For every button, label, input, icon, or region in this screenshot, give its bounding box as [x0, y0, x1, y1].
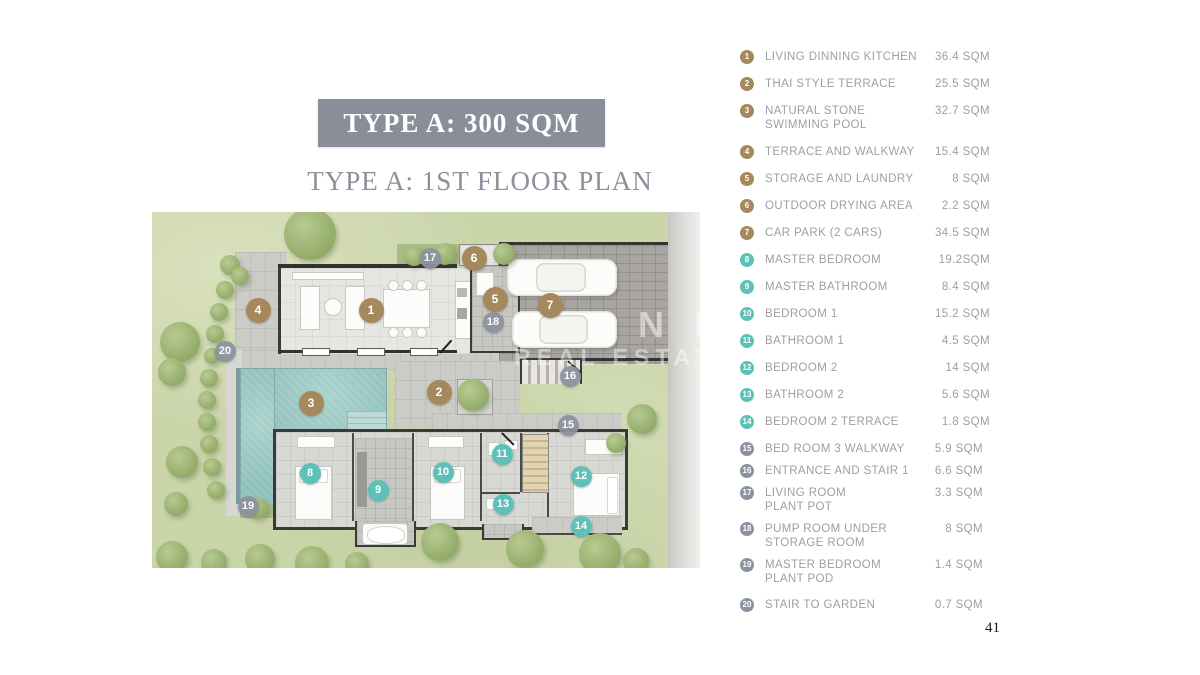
floor-plan: N PH REAL ESTATE 12345678910111213141516…: [152, 212, 700, 568]
legend-value: 14 SQM: [945, 361, 990, 375]
legend-label: OUTDOOR DRYING AREA: [765, 199, 931, 213]
plan-marker-1: 1: [359, 298, 384, 323]
plan-marker-2: 2: [427, 380, 452, 405]
tree: [166, 446, 198, 478]
legend-marker-17: 17: [740, 486, 754, 500]
legend-item-7: 7CAR PARK (2 CARS)34.5 SQM: [740, 226, 990, 240]
legend-value: 8.4 SQM: [942, 280, 990, 294]
plan-marker-17: 17: [420, 248, 441, 269]
legend-item-13: 13BATHROOM 25.6 SQM: [740, 388, 990, 402]
tree: [198, 413, 216, 431]
legend-marker-1: 1: [740, 50, 754, 64]
tree: [579, 533, 621, 568]
plan-marker-10: 10: [433, 462, 454, 483]
legend-marker-10: 10: [740, 307, 754, 321]
vanity: [357, 452, 367, 507]
legend-label: BEDROOM 2: [765, 361, 931, 375]
walkway-15: [432, 413, 622, 429]
tree: [158, 358, 186, 386]
legend-value: 1.4 SQM: [935, 558, 983, 572]
legend-label: LIVING ROOM PLANT POT: [765, 486, 931, 514]
legend: 1LIVING DINNING KITCHEN36.4 SQM2THAI STY…: [740, 50, 990, 620]
legend-label: BATHROOM 2: [765, 388, 931, 402]
legend-value: 36.4 SQM: [935, 50, 990, 64]
legend-value: 4.5 SQM: [942, 334, 990, 348]
plan-marker-14: 14: [571, 516, 592, 537]
watermark-line1: N PH: [638, 304, 700, 346]
chair: [388, 280, 399, 291]
legend-marker-2: 2: [740, 77, 754, 91]
kitchen-appliance: [457, 288, 467, 297]
legend-value: 25.5 SQM: [935, 77, 990, 91]
legend-value: 2.2 SQM: [942, 199, 990, 213]
wall: [278, 268, 281, 354]
legend-item-16: 16ENTRANCE AND STAIR 16.6 SQM: [740, 464, 990, 478]
dining-table: [383, 289, 430, 328]
tree: [160, 322, 200, 362]
tree: [210, 303, 228, 321]
legend-label: BED ROOM 3 WALKWAY: [765, 442, 931, 456]
legend-marker-18: 18: [740, 522, 754, 536]
tree: [156, 541, 188, 568]
tv-cabinet: [292, 272, 364, 280]
legend-item-1: 1LIVING DINNING KITCHEN36.4 SQM: [740, 50, 990, 64]
legend-marker-6: 6: [740, 199, 754, 213]
legend-marker-15: 15: [740, 442, 754, 456]
tree: [245, 544, 275, 568]
legend-marker-11: 11: [740, 334, 754, 348]
legend-item-18: 18PUMP ROOM UNDER STORAGE ROOM8 SQM: [740, 522, 990, 550]
legend-marker-9: 9: [740, 280, 754, 294]
legend-label: NATURAL STONE SWIMMING POOL: [765, 104, 931, 132]
title-badge: TYPE A: 300 SQM: [318, 99, 605, 147]
wardrobe: [428, 436, 464, 448]
legend-label: BEDROOM 2 TERRACE: [765, 415, 931, 429]
legend-label: MASTER BEDROOM PLANT POD: [765, 558, 931, 586]
wall: [352, 433, 354, 521]
tree: [295, 546, 329, 568]
legend-value: 34.5 SQM: [935, 226, 990, 240]
road: [668, 212, 700, 568]
tree: [627, 404, 657, 434]
tree: [421, 523, 459, 561]
legend-item-4: 4TERRACE AND WALKWAY15.4 SQM: [740, 145, 990, 159]
coffee-table: [324, 298, 342, 316]
tree: [231, 267, 249, 285]
chair: [402, 327, 413, 338]
tree: [345, 552, 369, 568]
legend-label: THAI STYLE TERRACE: [765, 77, 931, 91]
legend-value: 5.9 SQM: [935, 442, 983, 456]
legend-item-3: 3NATURAL STONE SWIMMING POOL32.7 SQM: [740, 104, 990, 132]
window: [410, 348, 438, 356]
legend-item-20: 20STAIR TO GARDEN0.7 SQM: [740, 598, 990, 612]
page-title: TYPE A: 300 SQM: [343, 108, 579, 139]
legend-marker-14: 14: [740, 415, 754, 429]
legend-marker-7: 7: [740, 226, 754, 240]
legend-item-9: 9MASTER BATHROOM8.4 SQM: [740, 280, 990, 294]
tree: [200, 369, 218, 387]
legend-value: 15.2 SQM: [935, 307, 990, 321]
legend-label: BATHROOM 1: [765, 334, 931, 348]
plan-marker-8: 8: [300, 463, 321, 484]
legend-item-11: 11BATHROOM 14.5 SQM: [740, 334, 990, 348]
plan-marker-15: 15: [558, 415, 579, 436]
legend-value: 8 SQM: [945, 522, 983, 536]
tree: [198, 391, 216, 409]
chair: [416, 280, 427, 291]
legend-marker-19: 19: [740, 558, 754, 572]
plan-marker-19: 19: [238, 496, 259, 517]
page-number: 41: [985, 620, 1000, 637]
tree: [207, 481, 225, 499]
watermark-line2: REAL ESTATE: [514, 344, 700, 371]
legend-value: 1.8 SQM: [942, 415, 990, 429]
plan-marker-13: 13: [493, 494, 514, 515]
legend-item-15: 15BED ROOM 3 WALKWAY5.9 SQM: [740, 442, 990, 456]
tree: [200, 435, 218, 453]
legend-value: 3.3 SQM: [935, 486, 983, 500]
stairs: [522, 434, 549, 493]
plan-marker-9: 9: [368, 480, 389, 501]
plan-marker-3: 3: [299, 391, 324, 416]
plan-marker-5: 5: [483, 287, 508, 312]
legend-label: MASTER BATHROOM: [765, 280, 931, 294]
plan-marker-12: 12: [571, 466, 592, 487]
legend-label: MASTER BEDROOM: [765, 253, 931, 267]
sofa: [300, 286, 320, 330]
wardrobe: [297, 436, 335, 448]
plan-marker-18: 18: [483, 312, 504, 333]
legend-item-5: 5STORAGE AND LAUNDRY8 SQM: [740, 172, 990, 186]
plan-marker-7: 7: [538, 293, 563, 318]
wall: [480, 433, 482, 521]
legend-label: BEDROOM 1: [765, 307, 931, 321]
tree: [493, 243, 515, 265]
legend-value: 0.7 SQM: [935, 598, 983, 612]
legend-item-19: 19MASTER BEDROOM PLANT POD1.4 SQM: [740, 558, 990, 586]
chair: [388, 327, 399, 338]
legend-marker-13: 13: [740, 388, 754, 402]
legend-item-2: 2THAI STYLE TERRACE25.5 SQM: [740, 77, 990, 91]
legend-label: PUMP ROOM UNDER STORAGE ROOM: [765, 522, 931, 550]
legend-value: 19.2SQM: [939, 253, 990, 267]
legend-label: CAR PARK (2 CARS): [765, 226, 931, 240]
legend-value: 6.6 SQM: [935, 464, 983, 478]
legend-label: TERRACE AND WALKWAY: [765, 145, 931, 159]
plan-marker-11: 11: [492, 444, 513, 465]
plan-marker-16: 16: [560, 366, 581, 387]
wall: [412, 433, 414, 521]
legend-marker-16: 16: [740, 464, 754, 478]
legend-marker-8: 8: [740, 253, 754, 267]
tree: [506, 530, 544, 568]
swimming-pool-arm: [240, 368, 275, 506]
legend-value: 5.6 SQM: [942, 388, 990, 402]
legend-marker-5: 5: [740, 172, 754, 186]
tree: [203, 458, 221, 476]
tree: [164, 492, 188, 516]
tree: [206, 325, 224, 343]
legend-label: ENTRANCE AND STAIR 1: [765, 464, 931, 478]
window: [357, 348, 385, 356]
legend-item-8: 8MASTER BEDROOM19.2SQM: [740, 253, 990, 267]
legend-label: STORAGE AND LAUNDRY: [765, 172, 931, 186]
tree: [623, 548, 649, 568]
legend-value: 32.7 SQM: [935, 104, 990, 118]
chair: [402, 280, 413, 291]
legend-item-6: 6OUTDOOR DRYING AREA2.2 SQM: [740, 199, 990, 213]
legend-marker-4: 4: [740, 145, 754, 159]
page-subtitle: TYPE A: 1ST FLOOR PLAN: [299, 166, 661, 197]
chair: [416, 327, 427, 338]
bathtub: [362, 523, 408, 545]
car-1: [507, 259, 617, 296]
legend-item-17: 17LIVING ROOM PLANT POT3.3 SQM: [740, 486, 990, 514]
legend-item-10: 10BEDROOM 115.2 SQM: [740, 307, 990, 321]
car-2: [512, 311, 617, 348]
tree: [201, 549, 227, 568]
plan-marker-20: 20: [215, 341, 236, 362]
legend-item-12: 12BEDROOM 214 SQM: [740, 361, 990, 375]
legend-label: LIVING DINNING KITCHEN: [765, 50, 931, 64]
legend-marker-20: 20: [740, 598, 754, 612]
legend-marker-12: 12: [740, 361, 754, 375]
legend-value: 8 SQM: [952, 172, 990, 186]
legend-value: 15.4 SQM: [935, 145, 990, 159]
legend-marker-3: 3: [740, 104, 754, 118]
plan-marker-4: 4: [246, 298, 271, 323]
legend-item-14: 14BEDROOM 2 TERRACE1.8 SQM: [740, 415, 990, 429]
tree: [284, 212, 336, 260]
kitchen-appliance: [457, 308, 467, 319]
plan-marker-6: 6: [462, 246, 487, 271]
tree: [606, 433, 626, 453]
tree: [457, 379, 489, 411]
legend-label: STAIR TO GARDEN: [765, 598, 931, 612]
pool-steps: [347, 411, 386, 430]
tree: [216, 281, 234, 299]
window: [302, 348, 330, 356]
